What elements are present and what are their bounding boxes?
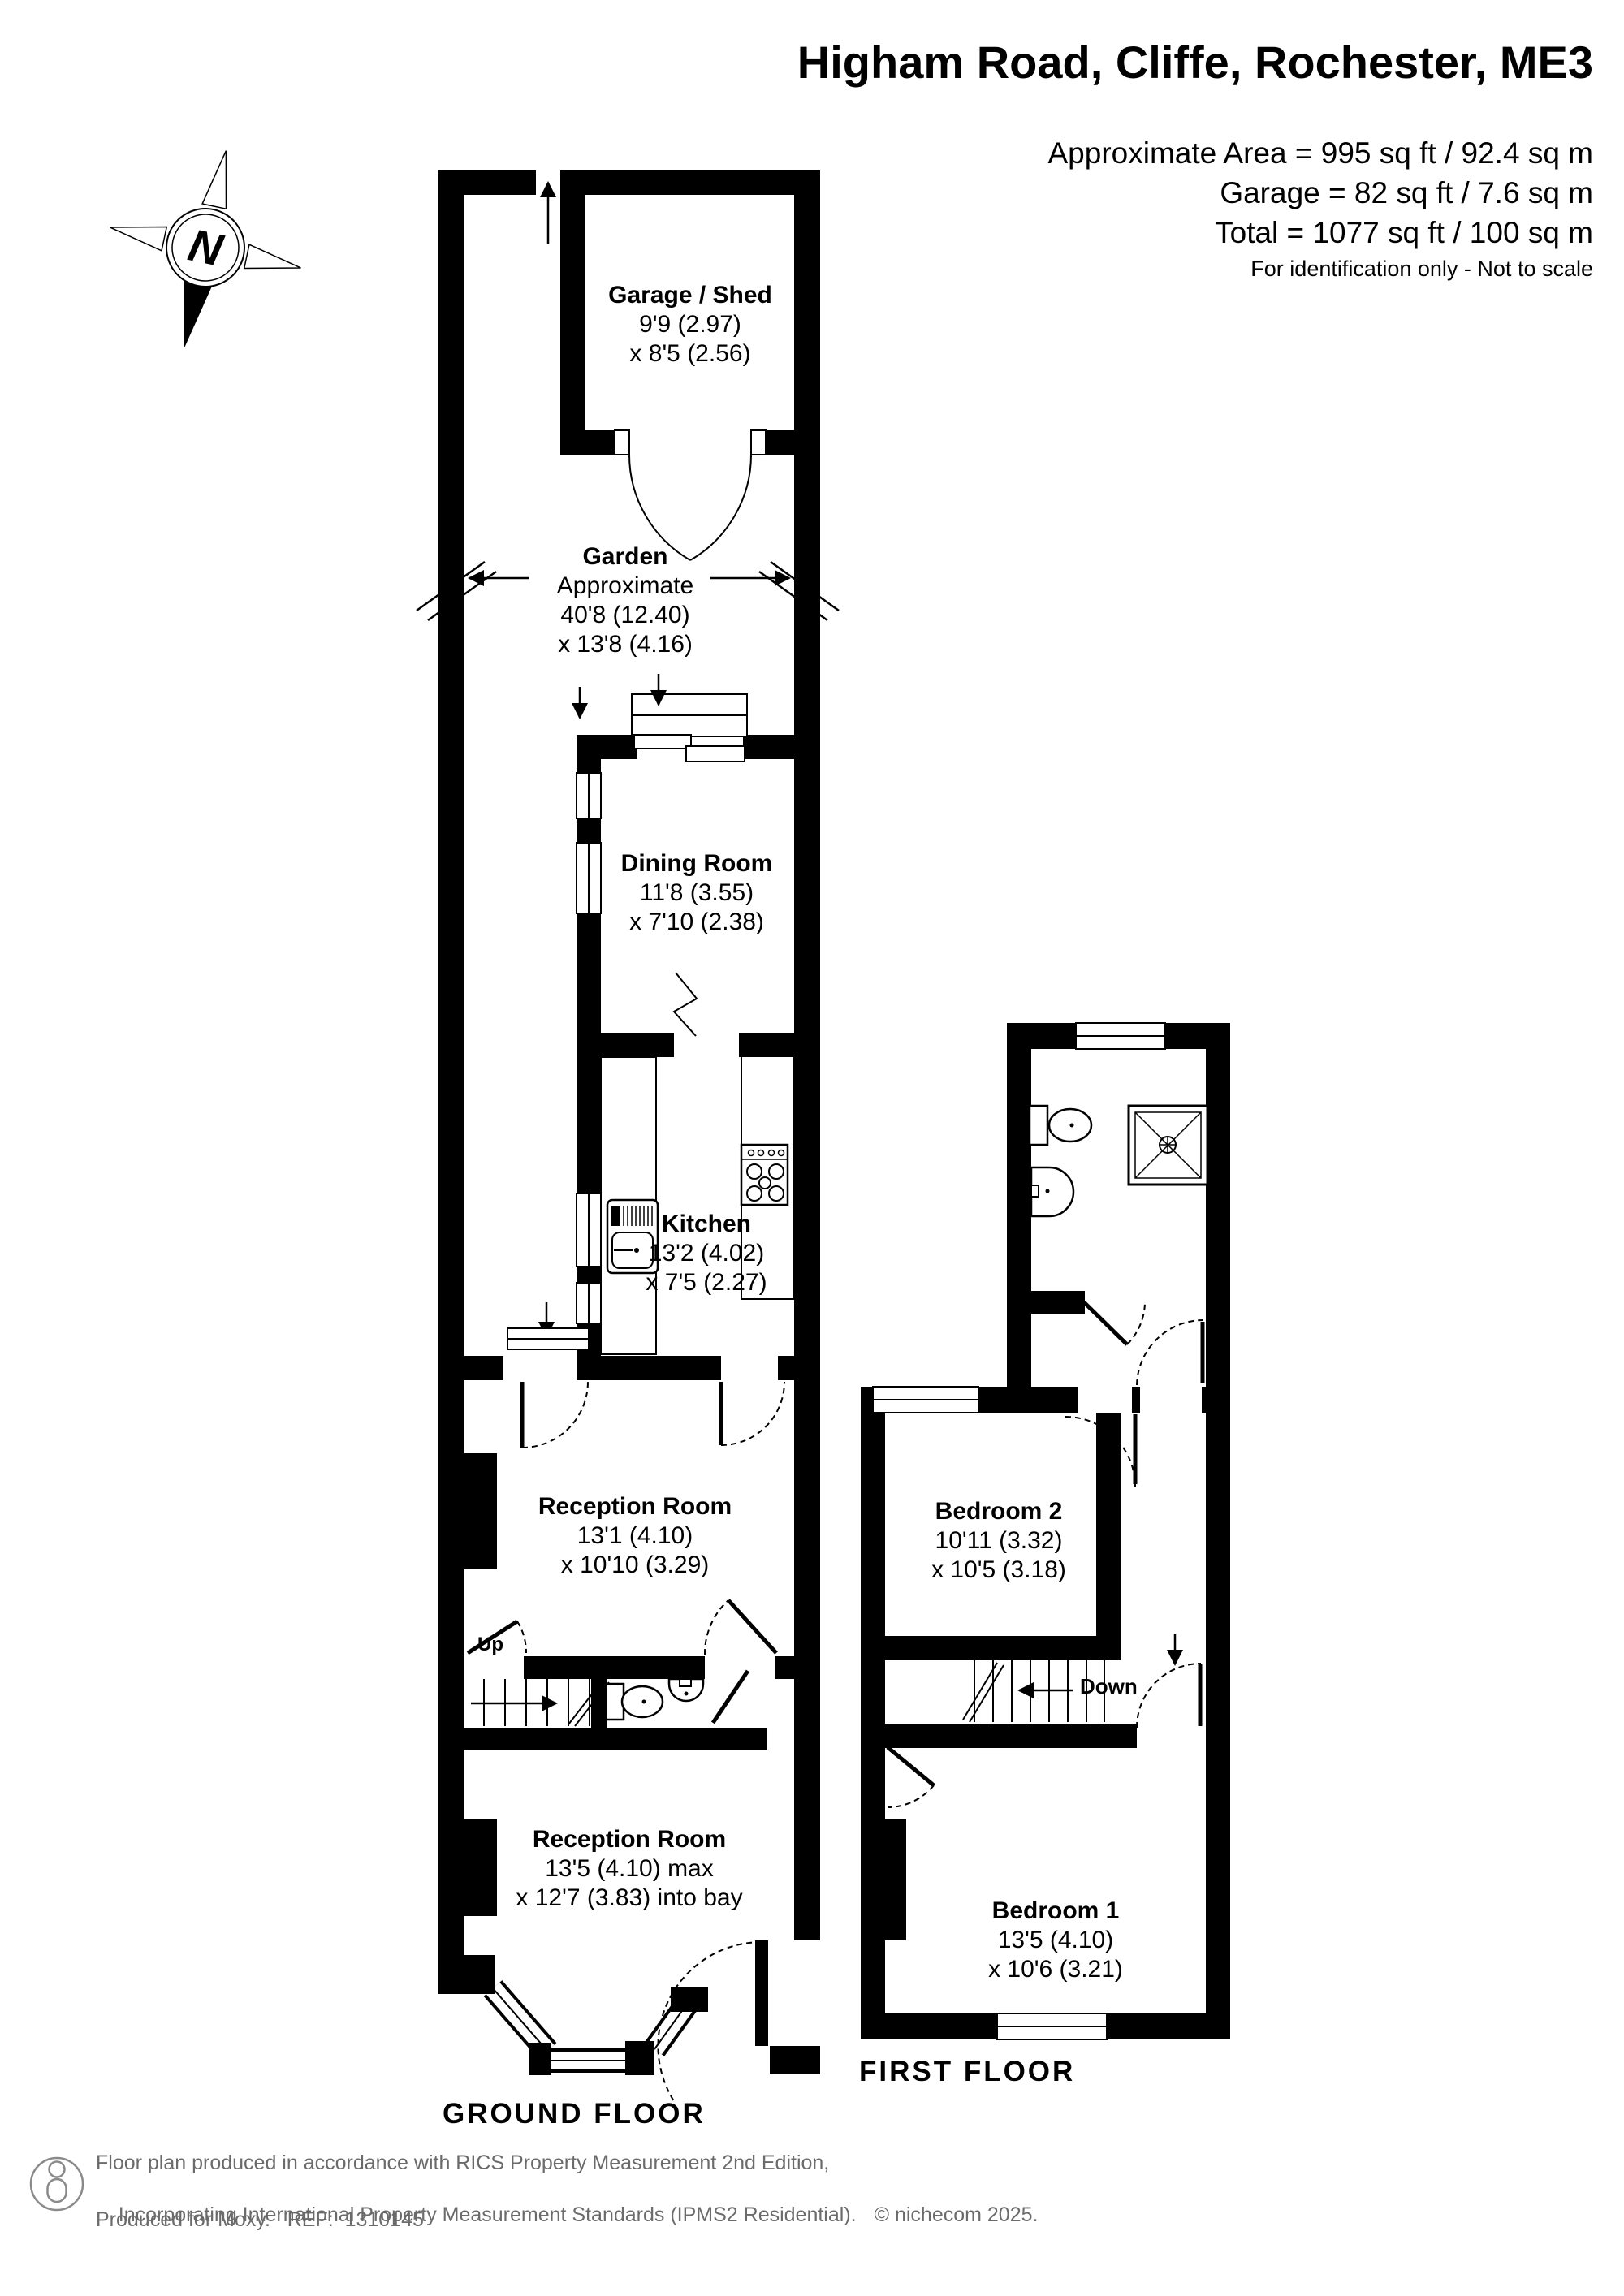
area-total: Total = 1077 sq ft / 100 sq m [1047,213,1593,252]
bathroom-toilet-icon [1030,1106,1091,1145]
stairs-down-label: Down [1080,1674,1138,1699]
footer-line-3: Produced for Moxy. REF: 1310145 [96,2208,424,2232]
chimney-breast-bedroom1 [885,1819,906,1940]
area-summary: Approximate Area = 995 sq ft / 92.4 sq m… [1047,133,1593,252]
ground-floor-plan [417,170,839,2101]
area-total-approx: Approximate Area = 995 sq ft / 92.4 sq m [1047,133,1593,173]
wc-toilet-icon [606,1684,663,1720]
folding-door-icon [674,973,697,1036]
floorplan-drawing: N [0,0,1624,2296]
bedroom1-cupboard-door [888,1747,934,1785]
shower-icon [1129,1106,1207,1185]
area-garage: Garage = 82 sq ft / 7.6 sq m [1047,173,1593,213]
garage-label: Garage / Shed 9'9 (2.97) x 8'5 (2.56) [608,281,772,369]
ground-floor-label: GROUND FLOOR [443,2098,706,2130]
garden-label: Garden Approximate 40'8 (12.40) x 13'8 (… [557,542,693,659]
bathroom-door [1084,1302,1127,1344]
dining-room-label: Dining Room 11'8 (3.55) x 7'10 (2.38) [621,849,773,937]
reception-room-1-label: Reception Room 13'1 (4.10) x 10'10 (3.29… [538,1492,732,1580]
footer-copyright: © nichecom 2025. [875,2203,1039,2226]
chimney-breast-reception1 [464,1453,497,1569]
bedroom-1-label: Bedroom 1 13'5 (4.10) x 10'6 (3.21) [988,1897,1123,1984]
wc-basin-icon [669,1679,703,1701]
compass-icon: N [89,131,322,368]
footer-line-1: Floor plan produced in accordance with R… [96,2151,829,2175]
porch-steps [632,694,747,762]
kitchen-label: Kitchen 13'2 (4.02) x 7'5 (2.27) [646,1210,767,1297]
scale-disclaimer: For identification only - Not to scale [1250,257,1593,282]
bathroom-basin-icon [1031,1167,1073,1216]
chimney-breast-reception2 [464,1819,497,1916]
hall-door [728,1600,776,1653]
reception-room-2-label: Reception Room 13'5 (4.10) max x 12'7 (3… [516,1825,742,1913]
first-floor-label: FIRST FLOOR [859,2056,1075,2088]
page-title: Higham Road, Cliffe, Rochester, ME3 [797,36,1593,88]
floorplan-page: N [0,0,1624,2296]
garage-double-doors [615,430,766,560]
person-icon [31,2158,83,2210]
wc-door [713,1671,748,1723]
side-entrance-step [508,1328,589,1349]
bedroom-2-label: Bedroom 2 10'11 (3.32) x 10'5 (3.18) [931,1497,1066,1585]
ground-stairs [471,1679,609,1726]
stairs-up-label: Up [477,1634,503,1656]
hob-icon [741,1145,788,1205]
